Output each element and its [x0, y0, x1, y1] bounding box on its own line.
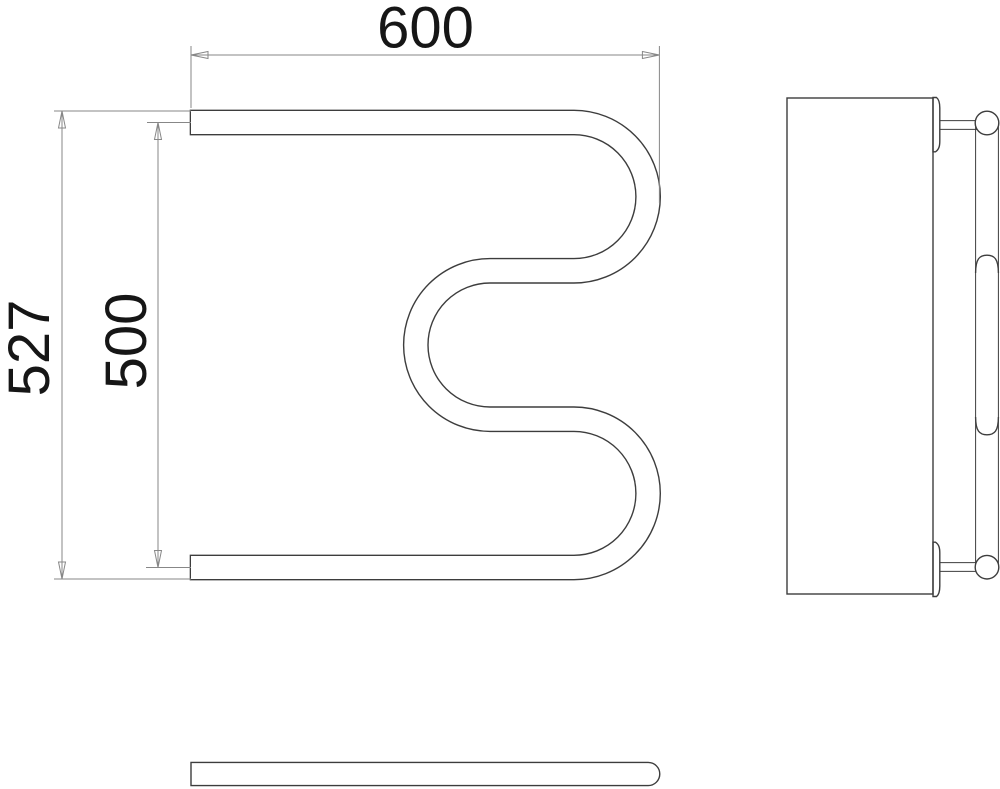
dimension-labels: 600 527 500 [0, 0, 474, 396]
wall-panel [787, 98, 933, 594]
serpentine-tube [190, 123, 648, 568]
side-view [787, 98, 999, 597]
bottom-view [191, 762, 660, 785]
ball-joint-top [975, 111, 999, 135]
ball-joint-bottom [975, 555, 999, 579]
wall-bracket-flange-top [933, 98, 940, 152]
technical-drawing: 600 527 500 [0, 0, 1000, 789]
pipe-bend-dome-bottom [976, 417, 999, 435]
pipe-side-profile [976, 123, 999, 568]
outer-height-dimension-label: 527 [0, 300, 62, 397]
width-dimension-label: 600 [377, 0, 474, 61]
front-view: 600 527 500 [0, 0, 659, 579]
tube-body [191, 123, 648, 568]
tube-plan-profile [191, 762, 660, 785]
axis-height-dimension-label: 500 [94, 293, 159, 390]
wall-bracket-flange-bottom [933, 542, 940, 596]
pipe-bend-dome-top [976, 255, 999, 273]
